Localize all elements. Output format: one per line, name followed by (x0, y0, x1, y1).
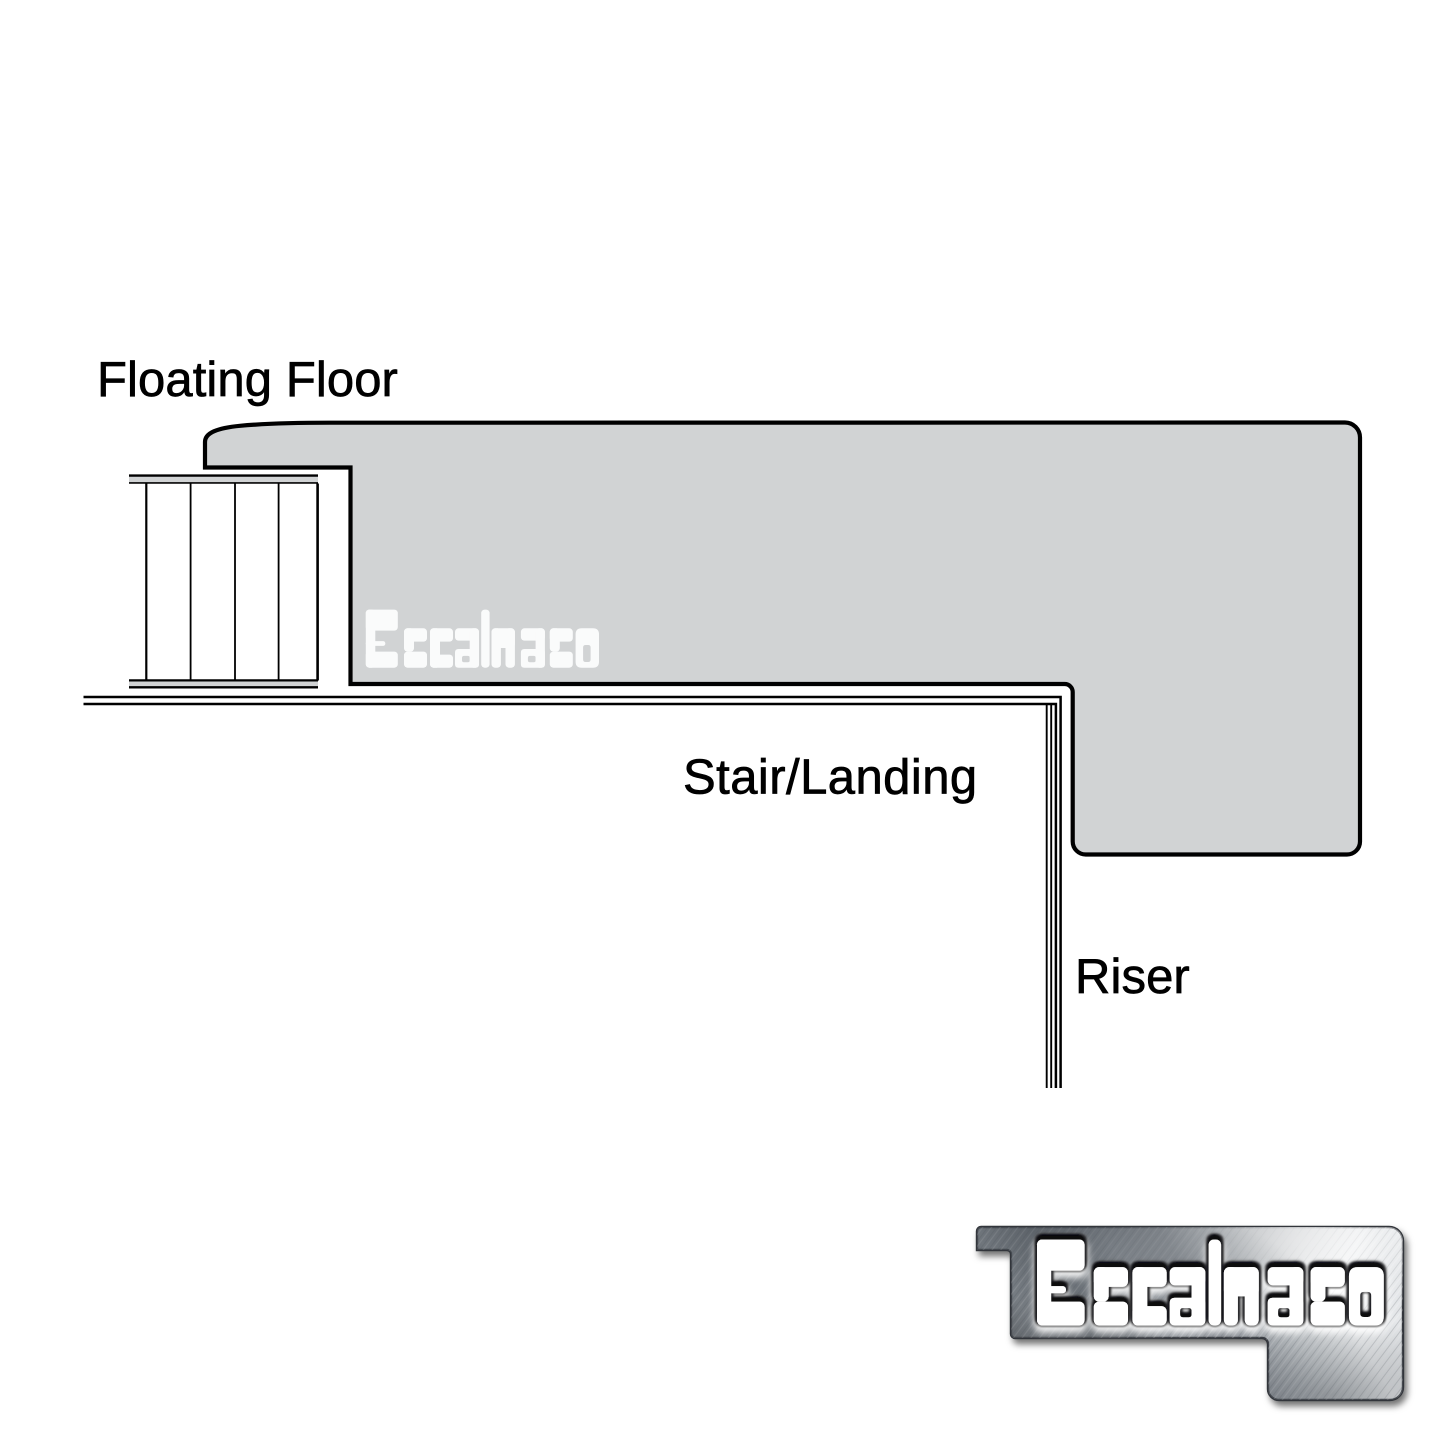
svg-text:Floating Floor: Floating Floor (97, 353, 398, 407)
svg-text:Stair/Landing: Stair/Landing (683, 751, 978, 805)
svg-text:Riser: Riser (1075, 950, 1190, 1004)
